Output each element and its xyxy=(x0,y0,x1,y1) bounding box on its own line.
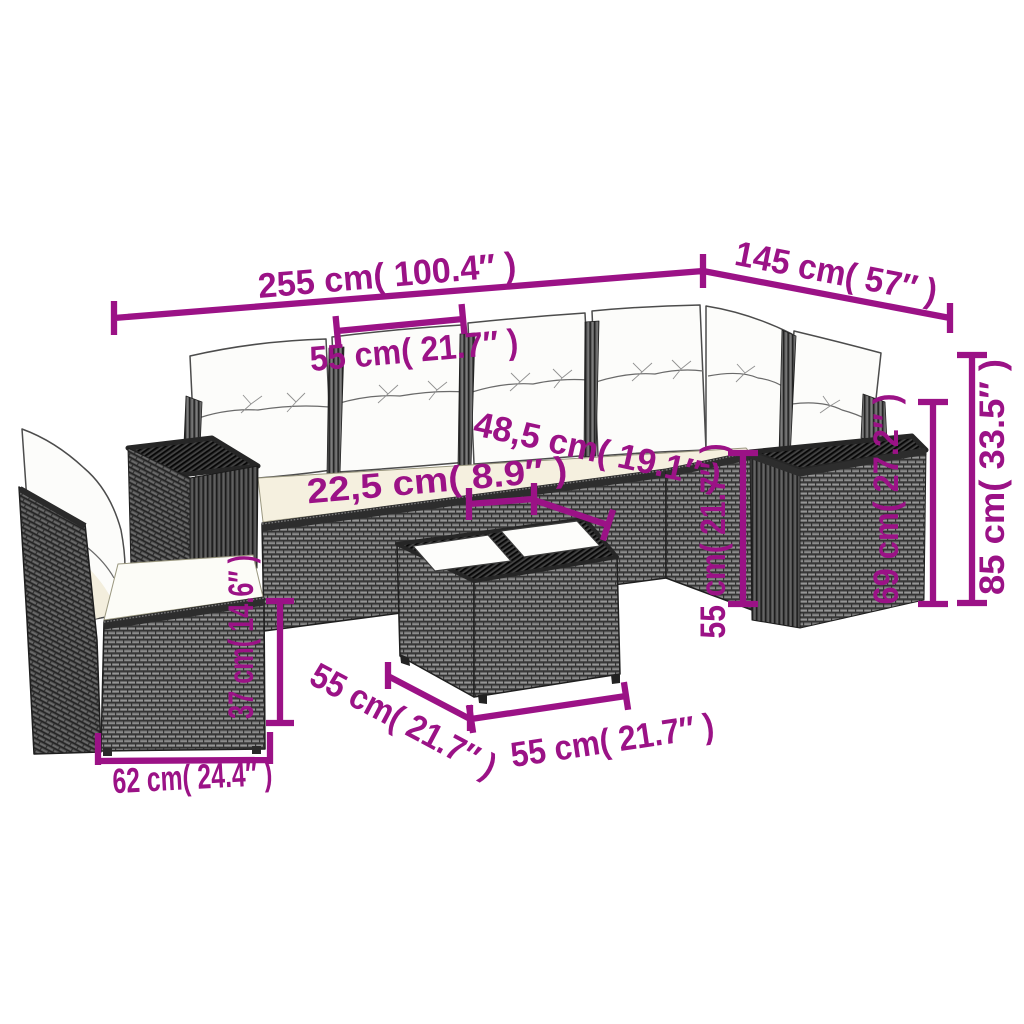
svg-text:69 cm( 27.2″ ): 69 cm( 27.2″ ) xyxy=(867,394,906,605)
svg-text:37 cm( 14.6″ ): 37 cm( 14.6″ ) xyxy=(222,555,261,719)
svg-text:55 cm( 21.7″ ): 55 cm( 21.7″ ) xyxy=(694,444,733,639)
svg-text:85 cm( 33.5″ ): 85 cm( 33.5″ ) xyxy=(973,359,1012,595)
